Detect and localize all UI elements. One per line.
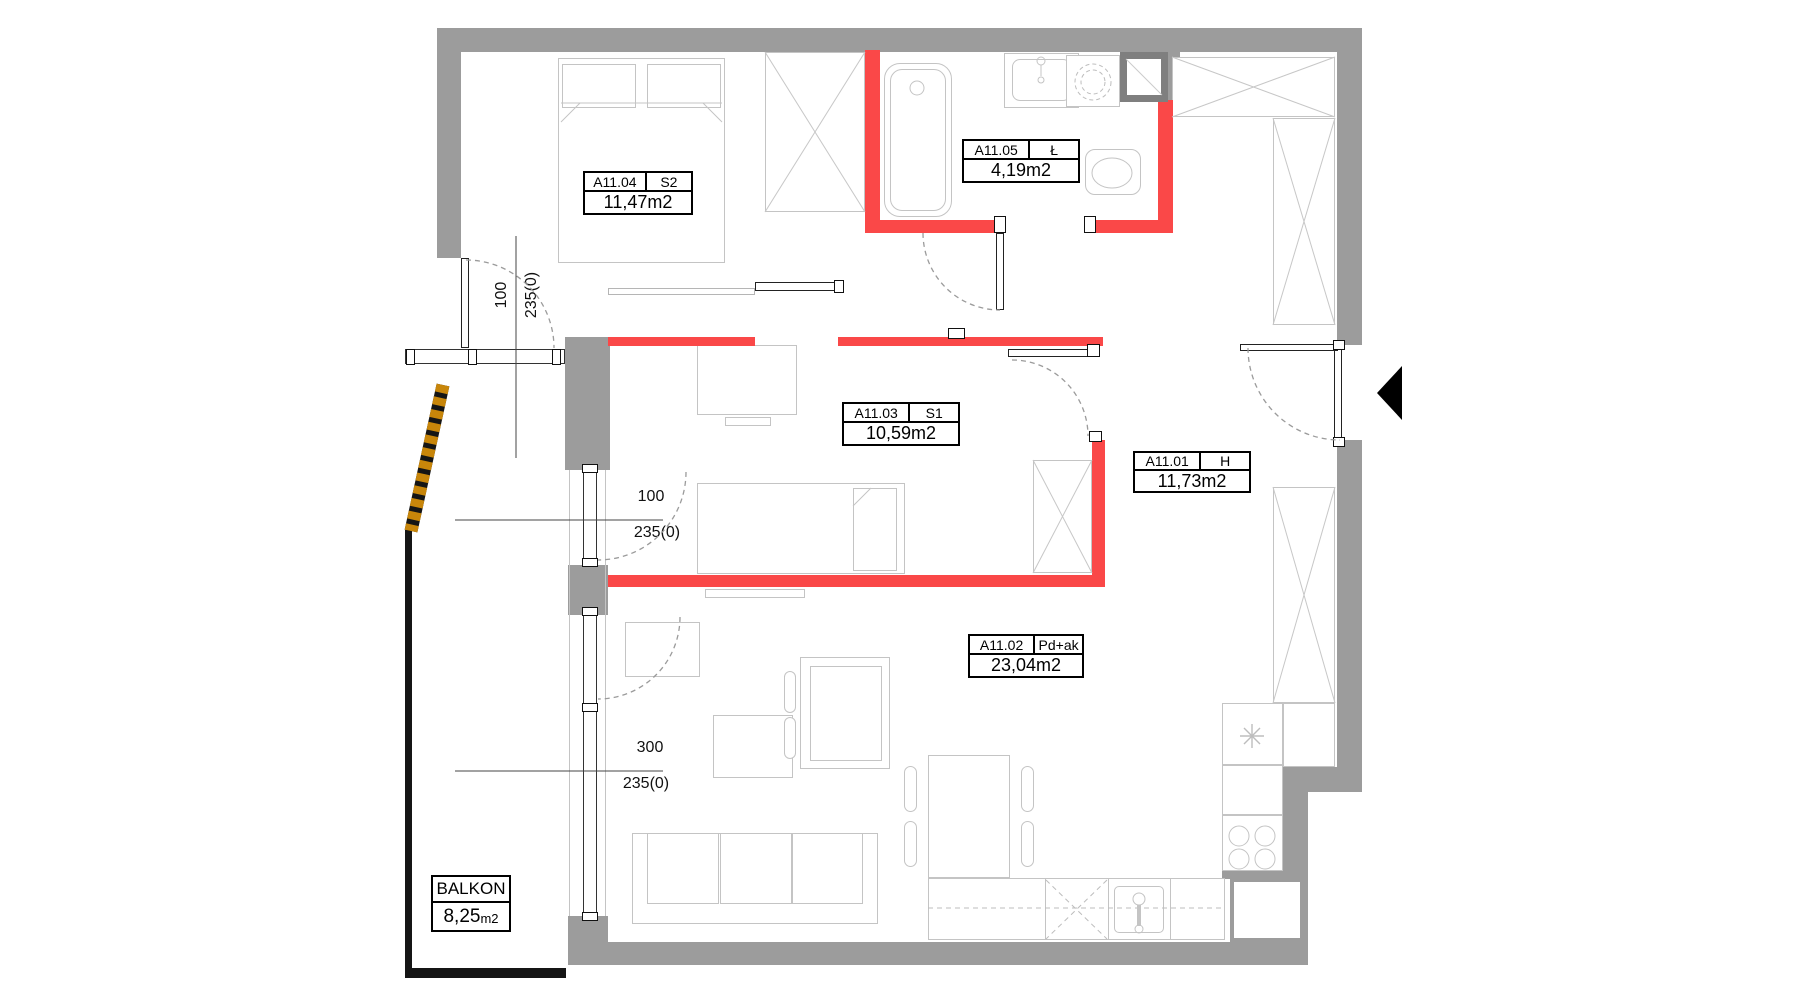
dining-table [928, 755, 1010, 878]
counter-divider [1045, 878, 1046, 940]
wall-niche [1230, 878, 1304, 942]
chair [1021, 766, 1034, 812]
chair [784, 717, 796, 759]
window-hardware [582, 558, 598, 567]
balcony-area: 8,25 [443, 906, 480, 928]
balcony-railing-left [405, 530, 412, 978]
wall-step [1283, 767, 1362, 792]
door-jamb [1089, 431, 1102, 442]
ventilation-shaft [1120, 52, 1168, 102]
room-area: 4,19m2 [964, 160, 1078, 181]
window-hardware [552, 349, 561, 365]
wall-left-upper [437, 28, 461, 258]
room-area: 11,73m2 [1135, 471, 1249, 492]
counter-divider [1170, 878, 1171, 940]
room-area: 10,59m2 [844, 423, 958, 444]
sofa-cushion [792, 833, 863, 904]
coffee-table [713, 715, 793, 778]
balcony-screen [411, 385, 443, 531]
bedroom-south-wall [608, 288, 755, 295]
room-code: S1 [910, 404, 958, 421]
room-code: Pd+ak [1035, 636, 1082, 653]
bed-pillow [853, 488, 897, 571]
bathroom-door-arc [923, 233, 1000, 310]
sofa-cushion [720, 833, 792, 904]
entrance-door-guide [1240, 344, 1338, 351]
window-hardware [406, 349, 415, 365]
red-wall-bath-right [1158, 100, 1173, 233]
chair [904, 821, 917, 867]
kitchen-counter [928, 878, 1225, 940]
dim-height: 235(0) [611, 775, 681, 795]
room-label-s1: A11.03S1 10,59m2 [842, 402, 960, 446]
sofa-cushion [647, 833, 719, 904]
room-label-hall: A11.01H 11,73m2 [1133, 451, 1251, 493]
room-code: Ł [1030, 141, 1078, 158]
dim-width: 100 [493, 265, 511, 325]
door-jamb [1333, 340, 1345, 350]
wall-right-upper [1337, 28, 1362, 345]
bedroom-window [405, 349, 565, 364]
balcony-name: BALKON [433, 877, 509, 903]
armchair-seat [810, 666, 882, 761]
window-hardware [582, 703, 598, 712]
room-id: A11.02 [970, 636, 1035, 653]
s1-window-arc [598, 472, 686, 560]
red-wall-bath-bottom-left [865, 220, 1000, 233]
red-wall-s1-top-left [608, 337, 755, 346]
red-wall-bath-left [865, 50, 880, 233]
room-area: 23,04m2 [970, 655, 1082, 676]
kitchen-cabinet [1283, 703, 1335, 767]
red-wall-s1-bottom [608, 575, 1105, 587]
wardrobe [1033, 460, 1092, 573]
room-label-living: A11.02Pd+ak 23,04m2 [968, 634, 1084, 678]
desk [697, 345, 797, 415]
wardrobe [765, 52, 865, 212]
wall-face-line-inner [605, 470, 606, 916]
bed-pillow [647, 64, 721, 108]
room-label-s2: A11.04S2 11,47m2 [583, 171, 693, 215]
counter-divider [1108, 878, 1109, 940]
wall-left-block [565, 337, 610, 470]
side-table [625, 622, 700, 677]
bathtub-inner [890, 69, 946, 211]
living-window [583, 709, 597, 921]
s1-hall-door-arc [1012, 360, 1088, 436]
wall-right-mid [1337, 440, 1362, 770]
washing-machine [1066, 55, 1120, 107]
dim-height: 235(0) [622, 524, 692, 544]
entrance-door-leaf [1334, 348, 1342, 438]
room-area: 11,47m2 [585, 192, 691, 213]
rug [705, 589, 805, 598]
room-id: A11.04 [585, 173, 647, 190]
door-jamb [1084, 216, 1096, 233]
fridge [1222, 703, 1283, 765]
wardrobe [1273, 487, 1335, 703]
window-hardware [582, 912, 598, 921]
window-hardware [582, 464, 598, 473]
chair [784, 671, 796, 713]
entrance-door-arc [1248, 348, 1340, 440]
room-code: H [1201, 453, 1249, 469]
balcony-railing-bottom [408, 968, 566, 978]
dim-width: 300 [619, 739, 681, 759]
s1-sliding-door [1008, 349, 1093, 357]
floor-plan: A11.04S2 11,47m2 A11.05Ł 4,19m2 A11.03S1… [0, 0, 1800, 1008]
window-hardware [468, 349, 477, 365]
chair [1021, 821, 1034, 867]
balcony-label: BALKON 8,25m2 [431, 875, 511, 932]
living-balcony-door [583, 611, 597, 711]
chair [904, 766, 917, 812]
wall-bottom [568, 942, 1308, 965]
red-wall-s1-right [1092, 440, 1105, 587]
balcony-unit: m2 [480, 911, 498, 926]
room-id: A11.01 [1135, 453, 1201, 469]
stove [1222, 815, 1283, 871]
wardrobe [1172, 57, 1335, 117]
door-jamb [948, 328, 965, 339]
door-jamb [834, 280, 844, 293]
bedroom-balcony-door-leaf [461, 258, 469, 348]
room-code: S2 [647, 173, 691, 190]
room-id: A11.05 [964, 141, 1030, 158]
room-label-bathroom: A11.05Ł 4,19m2 [962, 139, 1080, 183]
dim-width: 100 [620, 488, 682, 508]
desk-chair [725, 417, 771, 426]
door-jamb [1087, 344, 1100, 357]
kitchen-sink [1114, 886, 1164, 933]
wall-top [437, 28, 1362, 52]
door-jamb [994, 216, 1006, 233]
room-id: A11.03 [844, 404, 910, 421]
kitchen-cabinet [1222, 765, 1283, 815]
wall-face-line-outer [569, 470, 570, 916]
s1-balcony-window [583, 468, 597, 567]
dim-height: 235(0) [523, 263, 541, 327]
door-jamb [1333, 437, 1345, 447]
wardrobe [1273, 118, 1335, 325]
entrance-arrow-icon [1377, 366, 1402, 420]
red-wall-s1-top-right [838, 337, 1103, 346]
washbasin [1012, 59, 1071, 101]
window-hardware [582, 607, 598, 616]
bed-pillow [562, 64, 636, 108]
bedroom-sliding-door [755, 282, 838, 291]
toilet [1085, 149, 1141, 195]
bathroom-door-leaf [996, 233, 1004, 310]
